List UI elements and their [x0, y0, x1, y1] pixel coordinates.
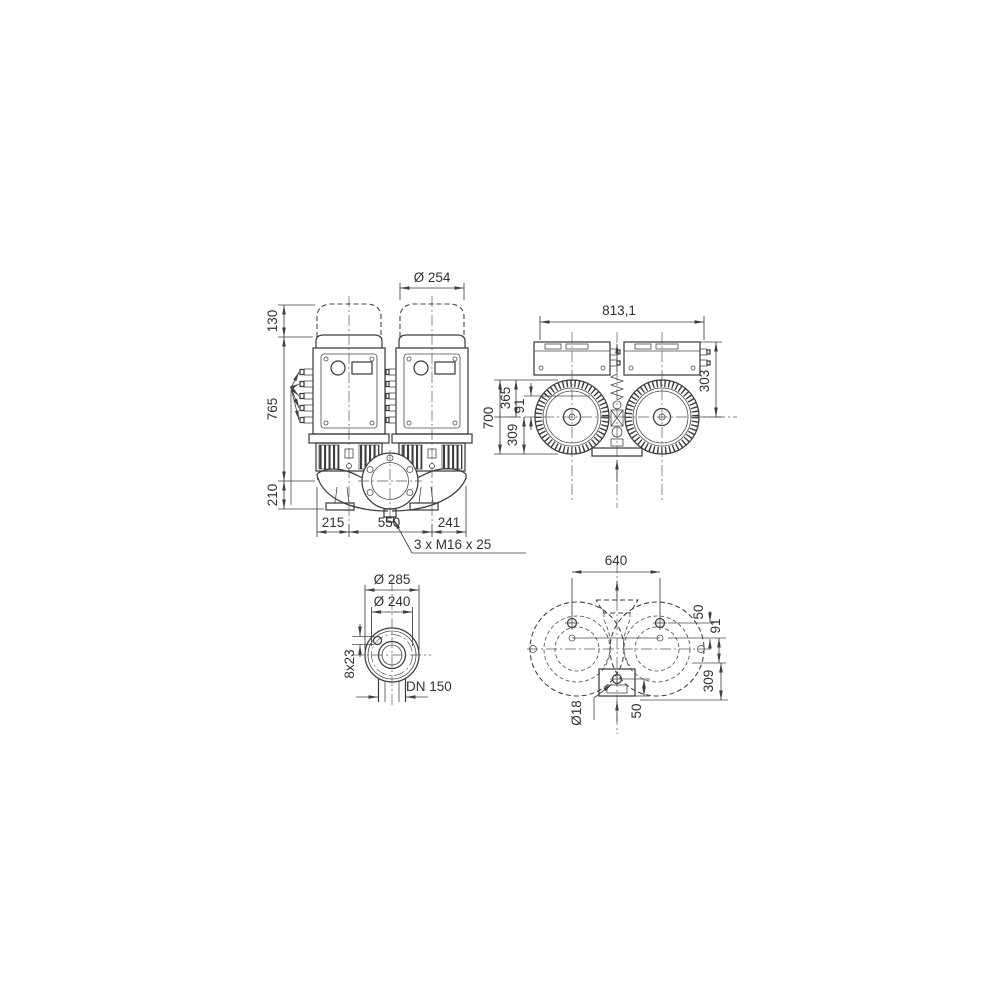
- foot-holes: [565, 616, 667, 641]
- dim-label-height-below-axis: 210: [265, 484, 280, 507]
- dim-label-right-foot: 241: [438, 515, 461, 530]
- dim-label-rear-depth: 309: [505, 424, 520, 447]
- dim-label-overall-depth: 700: [481, 407, 496, 430]
- dim-label-bottom-hole-edge: 50: [629, 703, 644, 718]
- dim-label-axis-spacing: 550: [378, 515, 401, 530]
- dim-label-nominal-diameter: DN 150: [406, 679, 452, 694]
- dim-label-hood-extra-height: 130: [265, 310, 280, 333]
- dim-label-overall-width: 813,1: [602, 303, 636, 318]
- dim-label-box-to-axis: 303: [697, 370, 712, 393]
- dim-label-foot-axis-offset: 91: [708, 618, 723, 633]
- left-foot: [326, 503, 354, 510]
- cable-glands-right: [386, 369, 396, 423]
- dim-label-bolt-holes: 8x23: [342, 649, 357, 678]
- casing-plan-view: 640 50 91 309 Ø18 50: [527, 553, 728, 734]
- dim-label-front-depth: 365: [498, 387, 513, 410]
- dim-label-hood-diameter: Ø 254: [414, 270, 451, 285]
- pump-dimensional-drawing: Ø 254 130 765 210 215 550 241 3 x M16 x …: [0, 0, 1000, 1000]
- dim-label-height-above-axis: 765: [265, 398, 280, 421]
- drawing-canvas: Ø 254 130 765 210 215 550 241 3 x M16 x …: [0, 0, 1000, 1000]
- dim-label-bolt-circle: Ø 240: [374, 594, 411, 609]
- dim-label-left-foot: 215: [322, 515, 345, 530]
- dim-label-foot-hole-diameter: Ø18: [569, 700, 584, 726]
- casing-plan-dimensions: 640 50 91 309 Ø18 50: [569, 553, 728, 726]
- dim-label-pipe-axis-offset: 91: [512, 398, 527, 413]
- cable-gland-arrows: [291, 372, 299, 505]
- motor-plan-dimensions: 813,1 303 700 365 91 309: [481, 303, 722, 454]
- dim-label-foundation-bolt-note: 3 x M16 x 25: [414, 537, 491, 552]
- flange-detail-view: Ø 285 Ø 240 8x23 DN 150: [342, 572, 452, 707]
- dim-label-foot-spacing: 640: [605, 553, 628, 568]
- dim-label-plan-rear-depth: 309: [701, 670, 716, 693]
- cable-glands-left: [300, 369, 313, 423]
- dim-label-flange-od: Ø 285: [374, 572, 411, 587]
- left-terminal-box: [534, 342, 620, 375]
- motor-plan-view: 813,1 303 700 365 91 309: [481, 303, 737, 508]
- dim-label-hole-pair-offset: 50: [691, 604, 706, 619]
